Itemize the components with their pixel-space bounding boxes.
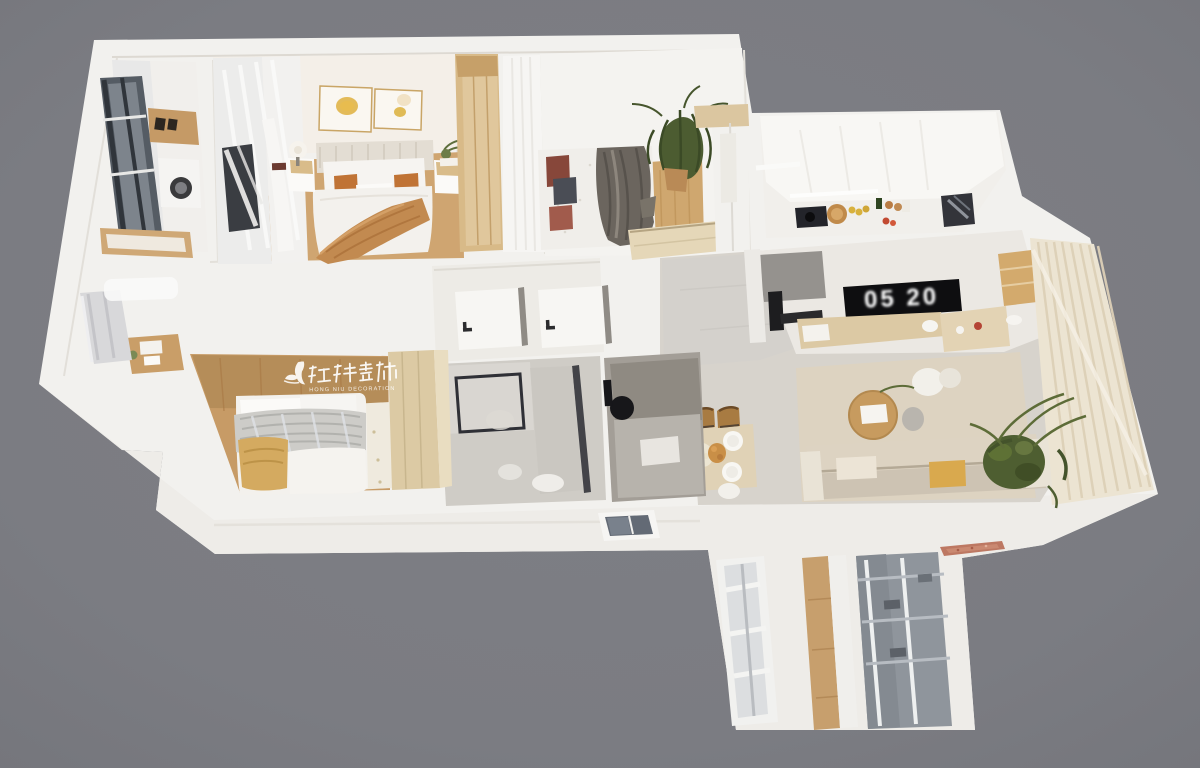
- svg-text:05 20: 05 20: [863, 283, 939, 314]
